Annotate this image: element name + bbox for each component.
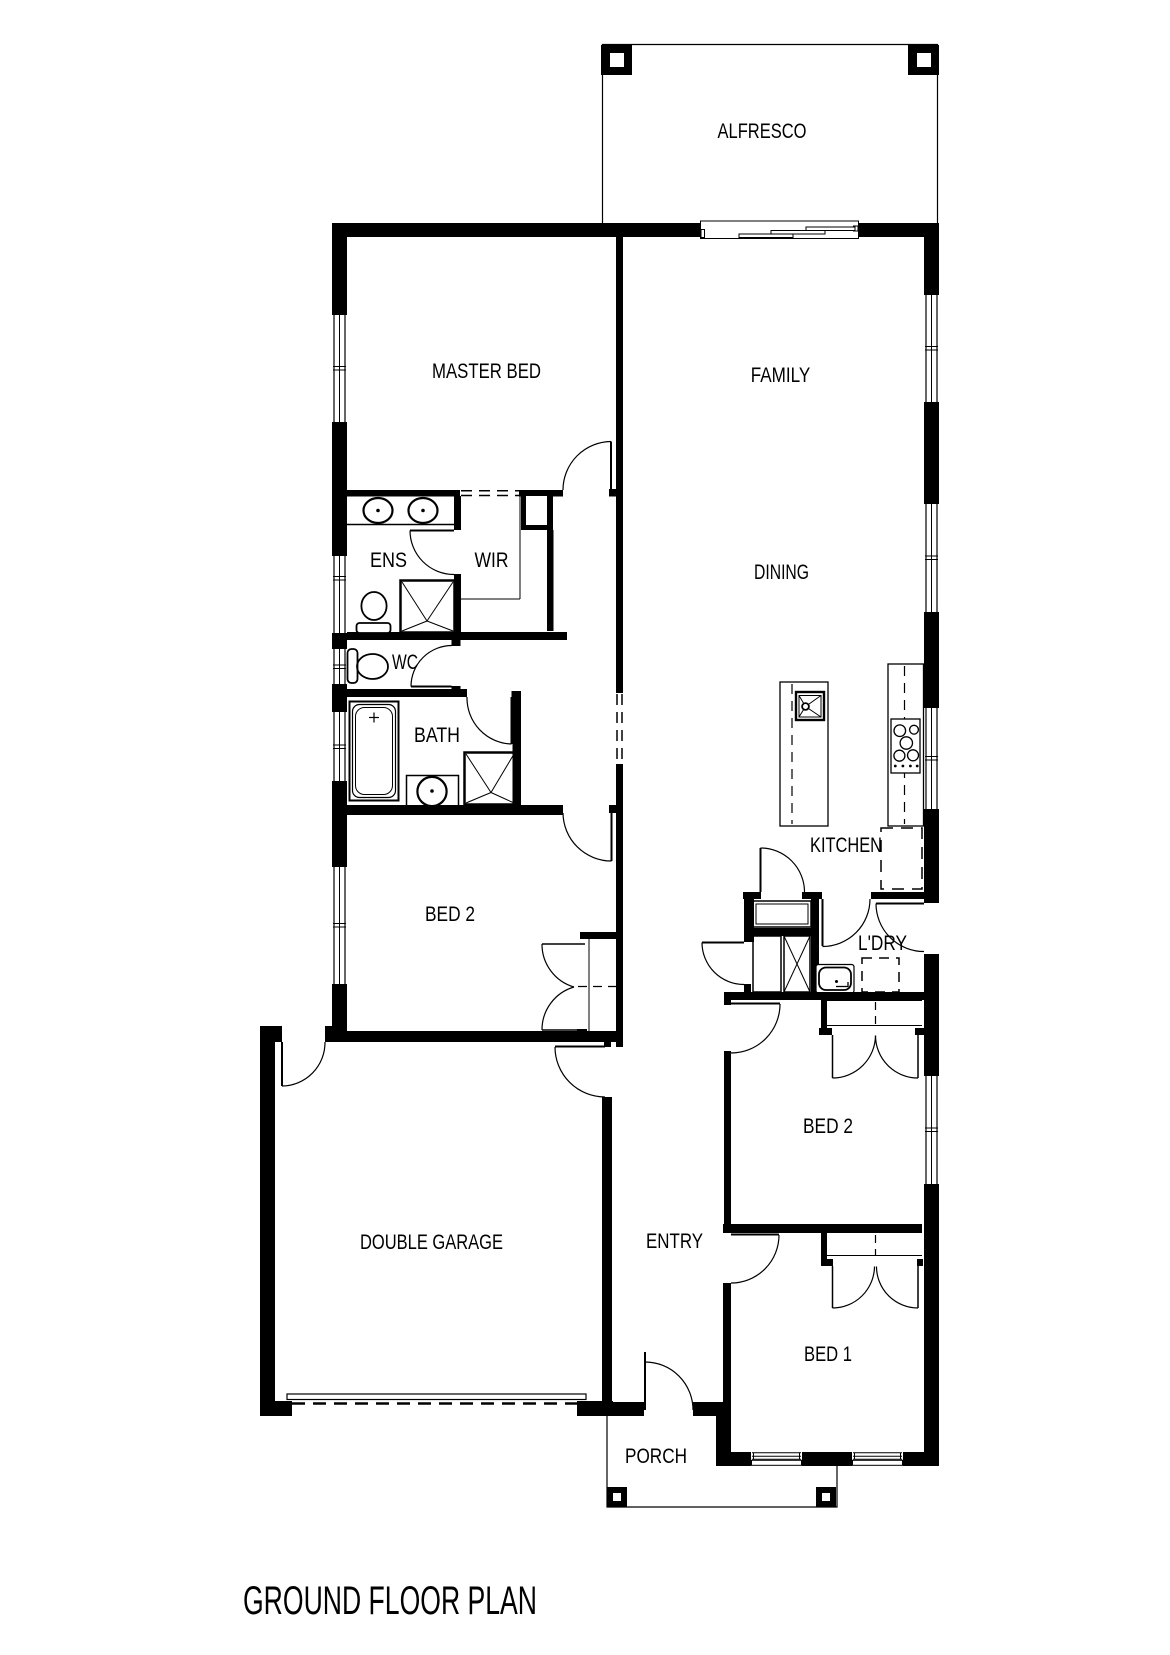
- svg-text:ENTRY: ENTRY: [646, 1229, 703, 1253]
- svg-text:DOUBLE GARAGE: DOUBLE GARAGE: [360, 1230, 503, 1254]
- svg-text:BED 2: BED 2: [803, 1114, 853, 1138]
- svg-text:BATH: BATH: [414, 723, 460, 747]
- svg-text:L'DRY: L'DRY: [858, 931, 907, 955]
- svg-text:WIR: WIR: [475, 548, 509, 572]
- svg-text:MASTER BED: MASTER BED: [432, 359, 541, 383]
- svg-text:FAMILY: FAMILY: [751, 363, 811, 387]
- svg-text:GROUND FLOOR PLAN: GROUND FLOOR PLAN: [243, 1579, 537, 1623]
- svg-text:BED 1: BED 1: [804, 1342, 852, 1366]
- svg-text:KITCHEN: KITCHEN: [810, 833, 882, 857]
- svg-text:PORCH: PORCH: [625, 1444, 687, 1468]
- svg-text:ENS: ENS: [370, 548, 407, 572]
- svg-text:WC: WC: [392, 650, 418, 674]
- svg-text:BED 2: BED 2: [425, 902, 475, 926]
- svg-text:DINING: DINING: [754, 560, 809, 584]
- svg-text:ALFRESCO: ALFRESCO: [718, 119, 807, 143]
